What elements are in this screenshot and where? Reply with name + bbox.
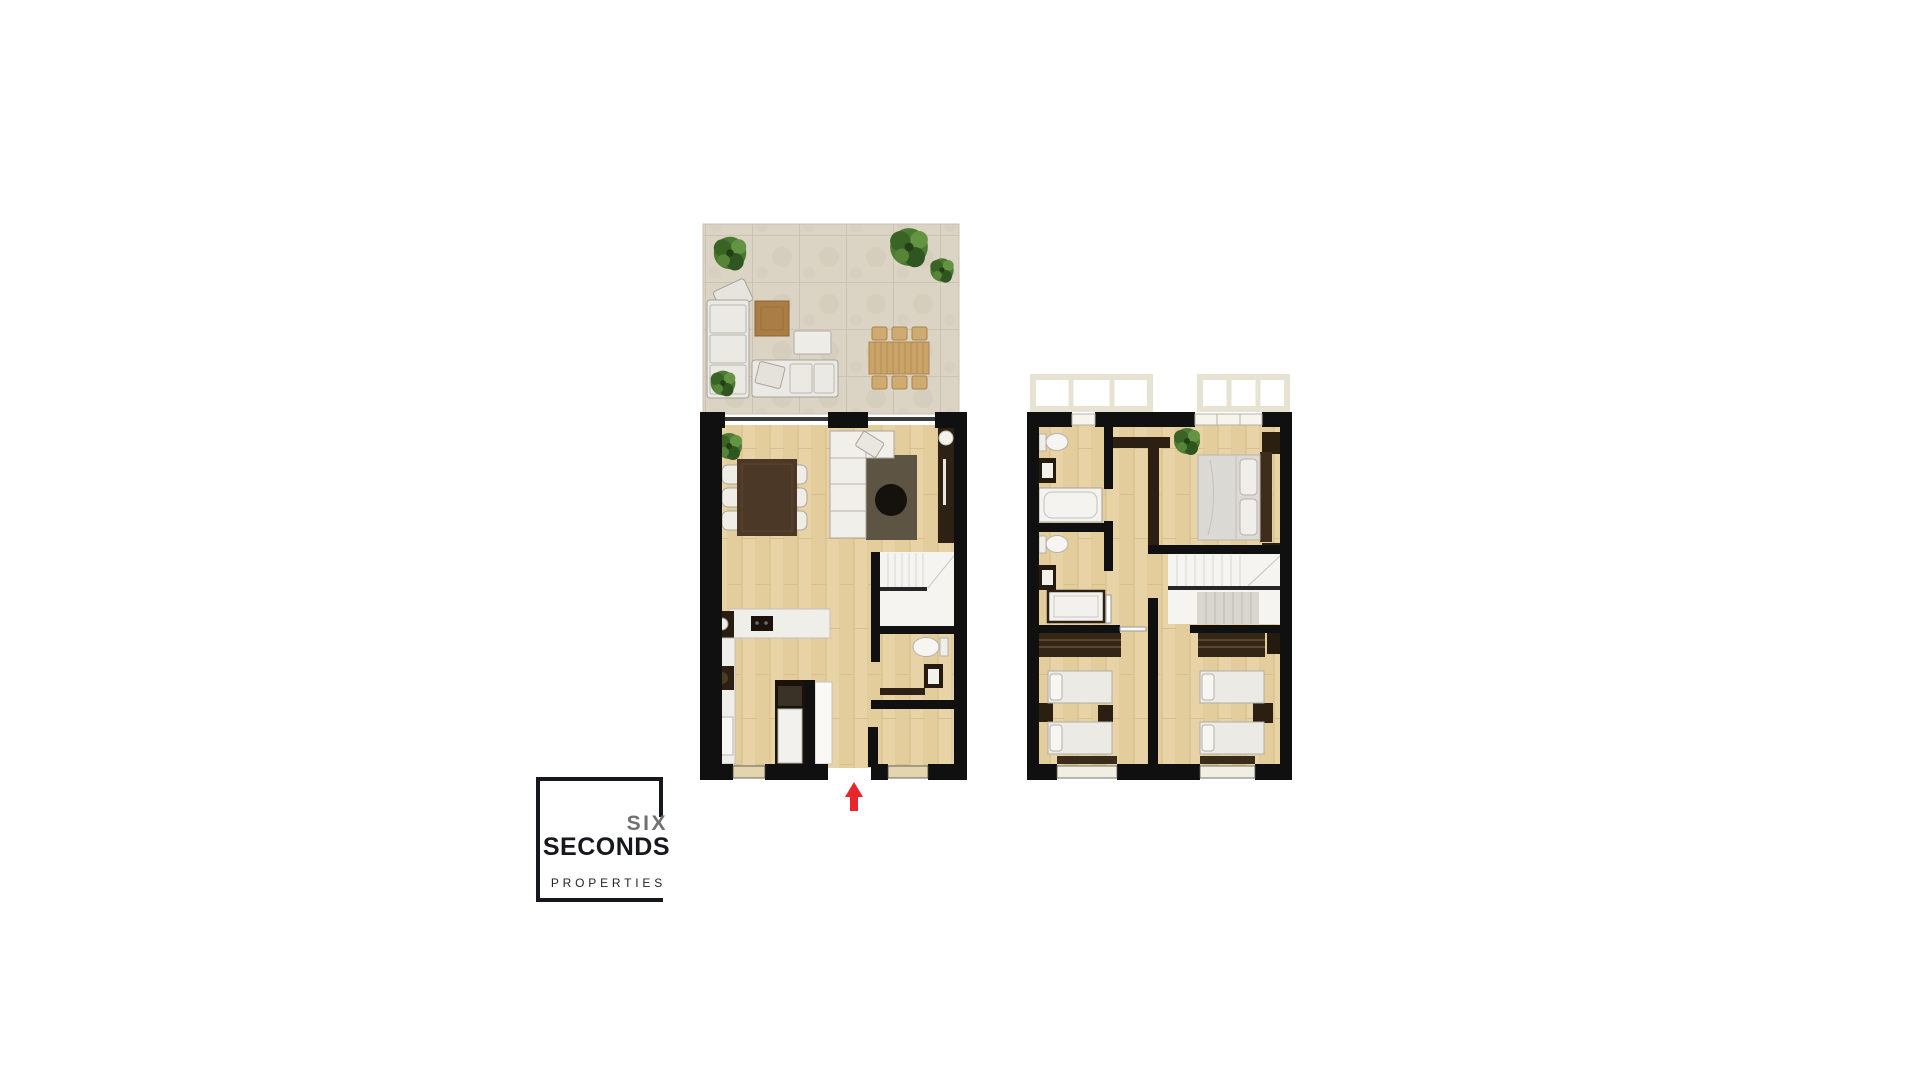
stair-handrail <box>1168 586 1280 590</box>
exterior-wall-right <box>954 412 967 780</box>
nightstand <box>1098 705 1113 722</box>
window-bench <box>1057 756 1117 764</box>
tv-screen <box>943 459 946 505</box>
coffee-table <box>875 484 907 516</box>
wardrobe <box>1039 633 1121 657</box>
floor-lamp <box>939 431 953 445</box>
sink-basin <box>928 669 939 684</box>
exterior-wall-right <box>1280 412 1292 780</box>
logo-border-left <box>536 777 540 902</box>
bedroom-left <box>1039 633 1121 764</box>
kitchen-island <box>729 609 830 638</box>
window <box>888 766 928 778</box>
nightstand <box>1262 432 1280 454</box>
sliding-door <box>725 417 828 421</box>
built-in-wardrobe <box>1112 437 1170 448</box>
staircase-ground <box>880 552 957 626</box>
toilet-tank <box>1039 434 1046 451</box>
dining-table <box>737 459 797 536</box>
pillow <box>1202 725 1214 751</box>
balcony-railing <box>1033 377 1150 409</box>
logo-border-bottom <box>536 898 663 902</box>
cabinet <box>1267 632 1280 654</box>
nightstand <box>1253 703 1273 723</box>
balcony-railings <box>1033 377 1287 409</box>
toilet <box>913 638 939 657</box>
entry-console <box>880 688 925 695</box>
window-bench <box>1200 756 1255 764</box>
outdoor-ottoman <box>794 331 831 354</box>
built-in-wardrobe <box>1148 448 1159 548</box>
pillow <box>1050 725 1062 751</box>
ground-floor-plan <box>695 220 975 820</box>
sink-basin <box>1042 570 1053 585</box>
balcony-railing <box>1200 377 1287 409</box>
door-leaf <box>1106 595 1111 623</box>
staircase-upper <box>1168 554 1280 624</box>
pillow <box>1202 674 1214 700</box>
exterior-wall-left <box>1027 412 1039 780</box>
toilet <box>1046 536 1068 553</box>
toilet <box>1046 434 1068 451</box>
window <box>1072 414 1095 425</box>
logo-word-seconds: SECONDS <box>543 835 670 860</box>
sliding-door <box>868 417 935 421</box>
cooktop <box>751 616 773 631</box>
window <box>733 766 765 778</box>
exterior-wall-left <box>700 412 722 780</box>
hall-door <box>815 682 832 764</box>
window <box>1057 766 1117 778</box>
pillow <box>1240 499 1257 535</box>
logo-word-properties: PROPERTIES <box>551 877 666 889</box>
tall-cabinet-oven <box>778 686 802 706</box>
window <box>1200 766 1255 778</box>
entrance-arrow <box>845 782 863 811</box>
logo-border-top <box>536 777 663 781</box>
door-leaf <box>1120 627 1146 631</box>
stair-handrail <box>880 587 927 591</box>
fridge-front <box>778 709 802 763</box>
outdoor-coffee-table <box>755 301 789 336</box>
toilet-tank <box>1039 536 1046 553</box>
bedroom-divider-wall <box>1148 598 1158 764</box>
first-floor-plan <box>1018 368 1298 784</box>
toilet-tank <box>940 638 948 656</box>
sink-basin <box>1042 463 1053 478</box>
stair-wall <box>871 552 880 633</box>
pillow <box>1240 459 1257 495</box>
floorplan-sheet: SIX SECONDS PROPERTIES <box>0 0 1920 1080</box>
wardrobe <box>1198 633 1265 657</box>
logo-border-right <box>659 777 663 817</box>
headboard <box>1260 452 1272 542</box>
brand-logo: SIX SECONDS PROPERTIES <box>536 777 663 902</box>
logo-word-six: SIX <box>627 813 668 834</box>
nightstand <box>1039 703 1053 722</box>
pillow <box>1050 674 1062 700</box>
window <box>1195 414 1262 425</box>
terrace <box>703 224 959 414</box>
outdoor-dining-set <box>869 327 929 389</box>
